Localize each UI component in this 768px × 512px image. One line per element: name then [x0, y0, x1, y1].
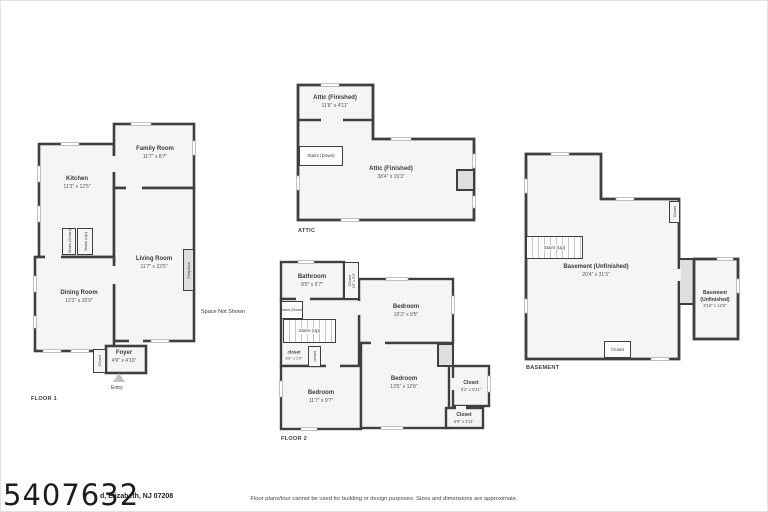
bedroom-right-label: Bedroom 15'3" x 9'5" [393, 304, 419, 318]
attic-stairs-down: Stairs (Down) [299, 146, 343, 166]
fireplace: Fireplace [183, 249, 194, 291]
entry-arrow-icon [113, 373, 125, 382]
kitchen-label: Kitchen 11'3" x 12'5" [63, 176, 90, 190]
listing-number: 5407632 [3, 478, 139, 512]
basement-stairs-up: Stairs (Up) [526, 236, 583, 259]
attic-main-label: Attic (Finished) 38'4" x 15'3" [369, 166, 413, 180]
basement-side-label: Basement (Unfinished) 6'10" x 12'8" [700, 290, 729, 308]
floor2-closet-bottom-label: Closet 5'9" x 2'11" [454, 412, 474, 424]
floor1-closet: Closet [93, 349, 106, 373]
dining-room-label: Dining Room 12'3" x 15'9" [60, 290, 97, 304]
basement-plan: Stairs (Up) Closet Basement (Unfinished)… [521, 149, 751, 374]
floor1-tag: FLOOR 1 [31, 396, 57, 402]
floorplan-page: Kitchen 11'3" x 12'5" Family Room 11'7" … [0, 0, 768, 512]
floor2-stairs-up: Stairs (Up) [283, 319, 336, 343]
bedroom-center-label: Bedroom 13'5" x 12'8" [390, 376, 417, 390]
basement-walls [521, 149, 751, 374]
attic-small-label: Attic (Finished) 11'8" x 4'11" [313, 95, 357, 109]
floor2-closet-mid: closet [308, 346, 321, 367]
floor2-plan: Bathroom 8'0" x 5'7" Closet 2'3" x 5'4" … [276, 256, 496, 446]
basement-tag: BASEMENT [526, 365, 559, 371]
floor2-tag: FLOOR 2 [281, 436, 307, 442]
floor2-closet-small-label: closet 3'6" x 2'9" [285, 349, 303, 360]
floor1-plan: Kitchen 11'3" x 12'5" Family Room 11'7" … [31, 111, 261, 411]
basement-main-label: Basement (Unfinished) 20'4" x 31'3" [563, 264, 628, 278]
foyer-label: Foyer 4'9" x 4'10" [112, 350, 137, 364]
entry-label: Entry [111, 385, 123, 391]
space-not-shown-note: Space Not Shown [201, 309, 245, 315]
floor1-stairs-down: Stairs (Down) [62, 228, 76, 255]
bedroom-left-label: Bedroom 11'7" x 9'7" [308, 390, 334, 404]
disclaimer-text: Floor plans/tour cannot be used for buil… [250, 496, 517, 502]
basement-closet-bottom: Closet [604, 341, 631, 358]
floor1-stairs-up: Stairs (Up) [77, 228, 93, 255]
floor2-stairs-down: Stairs (Down) [281, 301, 303, 319]
floor2-closet-top: Closet 2'3" x 5'4" [344, 262, 359, 299]
attic-plan: Attic (Finished) 11'8" x 4'11" Attic (Fi… [291, 76, 491, 241]
floor2-closet-right-label: Closet 5'2" x 5'11" [461, 380, 481, 392]
bathroom-label: Bathroom 8'0" x 5'7" [298, 274, 326, 288]
family-room-label: Family Room 11'7" x 8'7" [136, 146, 174, 160]
attic-tag: ATTIC [298, 228, 315, 234]
basement-closet-top: Closet [669, 201, 680, 223]
living-room-label: Living Room 11'7" x 22'5" [136, 256, 172, 270]
